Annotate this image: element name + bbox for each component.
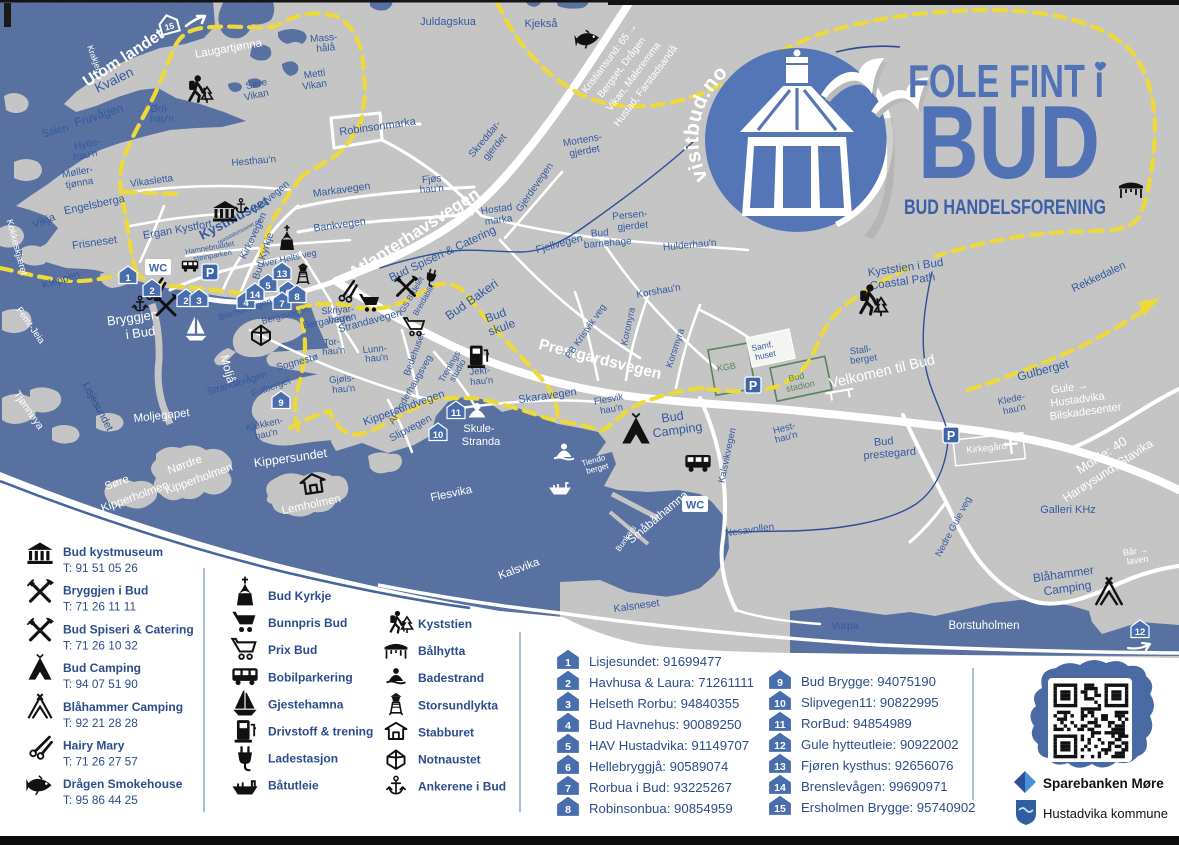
svg-text:T: 94 07 51 90: T: 94 07 51 90	[63, 677, 138, 691]
svg-text:12: 12	[774, 740, 786, 752]
svg-text:Notnaustet: Notnaustet	[418, 753, 481, 767]
svg-text:Stranda: Stranda	[462, 436, 501, 448]
svg-text:Bud Havnehus: 90089250: Bud Havnehus: 90089250	[589, 717, 742, 732]
svg-text:14: 14	[250, 290, 261, 301]
svg-text:2: 2	[149, 286, 154, 297]
svg-text:Skule-: Skule-	[463, 423, 495, 435]
svg-text:T: 92 21 28 28: T: 92 21 28 28	[63, 716, 138, 730]
svg-text:Bud: Bud	[873, 435, 894, 449]
svg-text:Båtutleie: Båtutleie	[268, 779, 319, 793]
svg-text:Gule hytteutleie: 90922002: Gule hytteutleie: 90922002	[801, 737, 959, 752]
svg-text:Ankerene i Bud: Ankerene i Bud	[418, 780, 506, 794]
svg-text:T: 95 86 44 25: T: 95 86 44 25	[63, 793, 138, 807]
svg-text:Drivstoff & trening: Drivstoff & trening	[268, 725, 373, 739]
svg-text:Ladestasjon: Ladestasjon	[268, 752, 338, 766]
svg-text:Fjøren kysthus: 92656076: Fjøren kysthus: 92656076	[801, 758, 953, 773]
svg-text:Bud Camping: Bud Camping	[63, 661, 141, 675]
svg-text:hau'n: hau'n	[322, 345, 346, 358]
svg-text:P: P	[206, 266, 214, 280]
svg-text:Kjekså: Kjekså	[524, 18, 558, 30]
svg-text:HAV Hustadvika: 91149707: HAV Hustadvika: 91149707	[589, 738, 749, 753]
svg-text:11: 11	[774, 719, 785, 731]
svg-text:2: 2	[183, 296, 188, 307]
svg-text:Storsundlykta: Storsundlykta	[418, 698, 498, 712]
svg-text:9: 9	[777, 677, 783, 689]
svg-text:Gjestehamna: Gjestehamna	[268, 697, 344, 711]
svg-text:10: 10	[774, 698, 786, 710]
svg-text:13: 13	[774, 761, 786, 773]
svg-text:Bud kystmuseum: Bud kystmuseum	[63, 545, 163, 559]
svg-text:5: 5	[565, 741, 571, 753]
svg-text:5: 5	[265, 281, 271, 292]
svg-text:Badestrand: Badestrand	[418, 671, 484, 685]
svg-text:hålå: hålå	[316, 41, 336, 55]
svg-text:Sparebanken Møre: Sparebanken Møre	[1043, 776, 1164, 791]
svg-text:Stabburet: Stabburet	[418, 725, 474, 739]
svg-text:T: 71 26 11 11: T: 71 26 11 11	[63, 600, 136, 614]
svg-text:Vorpa: Vorpa	[831, 620, 859, 632]
svg-text:hau'n: hau'n	[365, 352, 389, 365]
svg-text:12: 12	[1135, 627, 1146, 638]
svg-text:T: 91 51 05 26: T: 91 51 05 26	[63, 561, 138, 575]
svg-text:15: 15	[774, 803, 786, 815]
svg-text:Borstuholmen: Borstuholmen	[949, 620, 1020, 632]
svg-text:P: P	[947, 429, 955, 443]
svg-text:Slipvegen11: 90822995: Slipvegen11: 90822995	[801, 695, 939, 710]
svg-text:Hustadvika kommune: Hustadvika kommune	[1043, 806, 1168, 821]
svg-text:P: P	[749, 379, 757, 393]
svg-text:Bud Spiseri & Catering: Bud Spiseri & Catering	[63, 622, 194, 636]
svg-text:Hairy Mary: Hairy Mary	[63, 739, 125, 753]
svg-text:Rorbua i Bud: 93225267: Rorbua i Bud: 93225267	[589, 780, 732, 795]
svg-text:Bud Kyrkje: Bud Kyrkje	[268, 589, 332, 603]
svg-text:8: 8	[294, 292, 299, 303]
svg-text:3: 3	[196, 296, 201, 307]
svg-text:Bobilparkering: Bobilparkering	[268, 670, 353, 684]
svg-text:14: 14	[774, 782, 786, 794]
svg-text:Juldagskua: Juldagskua	[420, 16, 477, 28]
svg-text:7: 7	[565, 783, 571, 795]
svg-text:Bålhytta: Bålhytta	[418, 644, 466, 658]
svg-text:WC: WC	[686, 500, 704, 512]
svg-text:Havhusa & Laura: 71261111: Havhusa & Laura: 71261111	[589, 675, 754, 690]
svg-text:4: 4	[565, 720, 571, 732]
svg-text:8: 8	[565, 804, 571, 816]
svg-text:Kyststien: Kyststien	[418, 617, 472, 631]
svg-text:6: 6	[565, 762, 571, 774]
svg-text:1: 1	[565, 657, 571, 669]
svg-text:hau'n: hau'n	[332, 383, 356, 396]
svg-text:3: 3	[565, 699, 571, 711]
svg-text:2: 2	[565, 678, 571, 690]
svg-text:11: 11	[451, 408, 462, 419]
svg-text:Bryggjen i Bud: Bryggjen i Bud	[63, 584, 148, 598]
svg-text:7: 7	[279, 299, 284, 310]
svg-text:13: 13	[277, 269, 288, 280]
svg-text:1: 1	[125, 273, 131, 284]
svg-text:Bud Brygge: 94075190: Bud Brygge: 94075190	[801, 674, 936, 689]
svg-text:T: 71 26 10 32: T: 71 26 10 32	[63, 638, 138, 652]
svg-text:Ersholmen Brygge: 95740902: Ersholmen Brygge: 95740902	[801, 800, 975, 815]
svg-text:Hellebryggjå: 90589074: Hellebryggjå: 90589074	[589, 759, 728, 774]
svg-text:Helseth Rorbu: 94840355: Helseth Rorbu: 94840355	[589, 696, 739, 711]
svg-text:T: 71 26 27 57: T: 71 26 27 57	[63, 755, 138, 769]
svg-text:9: 9	[278, 398, 283, 409]
svg-text:WC: WC	[149, 263, 167, 275]
svg-text:10: 10	[433, 430, 444, 441]
svg-text:Brenslevågen: 99690971: Brenslevågen: 99690971	[801, 779, 948, 794]
svg-text:Prix Bud: Prix Bud	[268, 643, 317, 657]
svg-text:hau'n: hau'n	[470, 375, 494, 388]
svg-text:Robinsonbua: 90854959: Robinsonbua: 90854959	[589, 801, 733, 816]
svg-text:RorBud: 94854989: RorBud: 94854989	[801, 716, 912, 731]
svg-text:Galleri KHz: Galleri KHz	[1040, 504, 1096, 516]
svg-text:Lisjesundet: 91699477: Lisjesundet: 91699477	[589, 654, 722, 669]
svg-text:hau'n: hau'n	[419, 183, 444, 196]
svg-text:Blåhammer Camping: Blåhammer Camping	[63, 700, 183, 714]
svg-text:BUD: BUD	[918, 85, 1100, 201]
svg-text:Drågen Smokehouse: Drågen Smokehouse	[63, 777, 183, 791]
svg-text:BUD HANDELSFORENING: BUD HANDELSFORENING	[904, 195, 1106, 219]
svg-text:Bunnpris Bud: Bunnpris Bud	[268, 616, 347, 630]
svg-text:hau'n: hau'n	[150, 114, 174, 125]
